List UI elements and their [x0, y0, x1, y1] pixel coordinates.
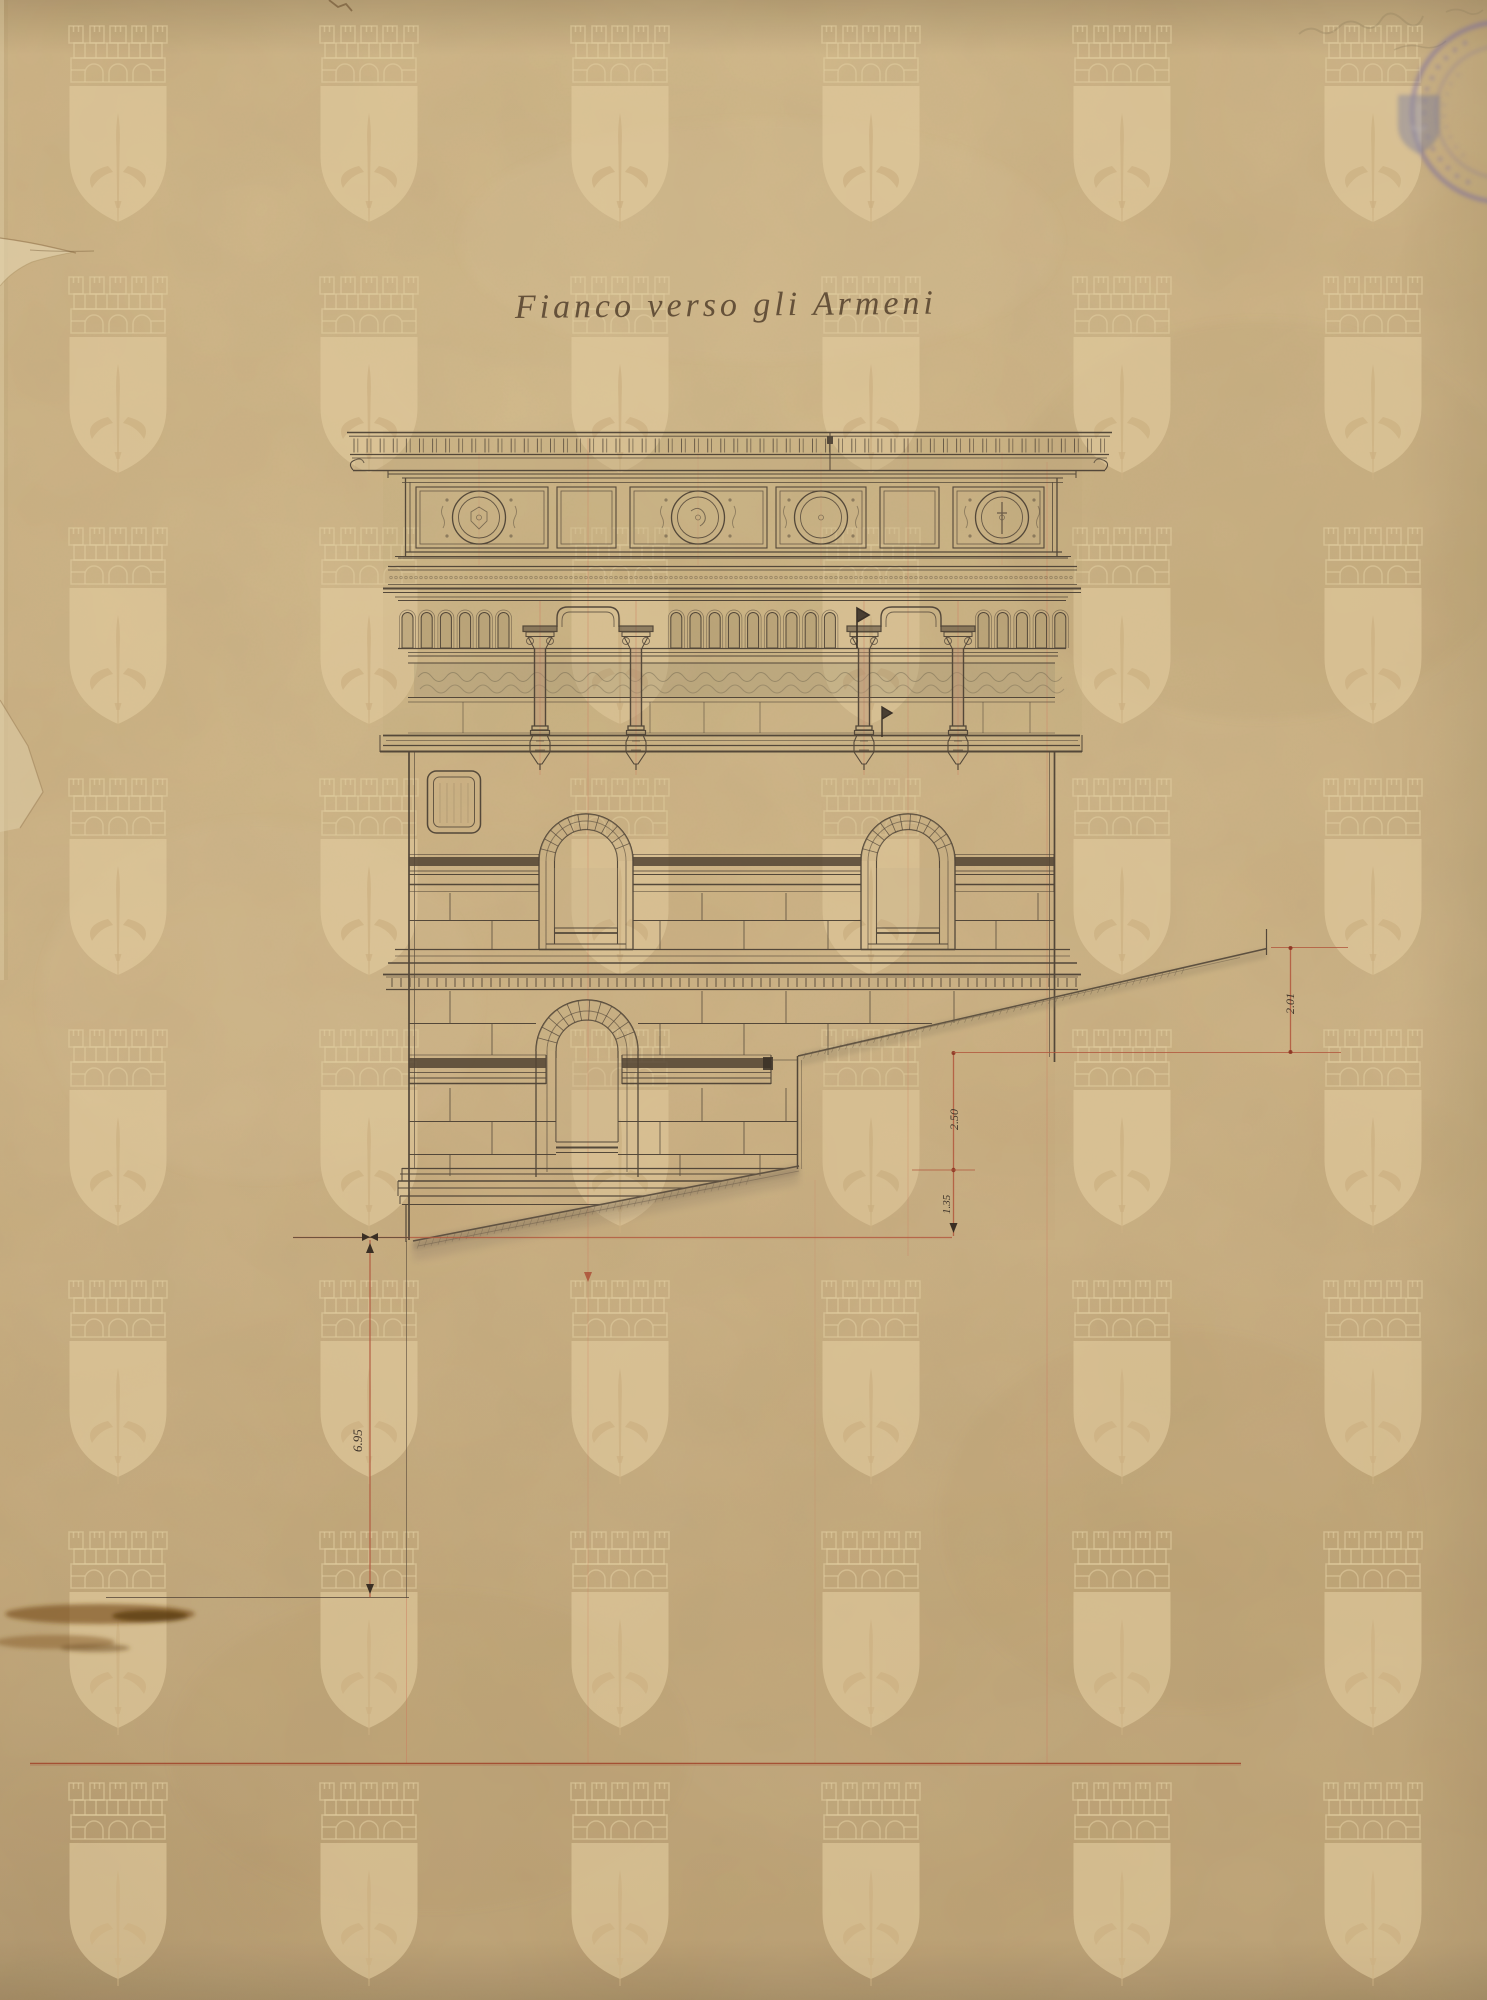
svg-text:Fianco verso gli Armeni: Fianco verso gli Armeni	[514, 285, 935, 326]
svg-text:1.35: 1.35	[941, 1194, 953, 1214]
svg-text:2.01: 2.01	[1283, 993, 1297, 1014]
svg-text:2.50: 2.50	[947, 1109, 961, 1130]
svg-text:6.95: 6.95	[350, 1429, 365, 1452]
